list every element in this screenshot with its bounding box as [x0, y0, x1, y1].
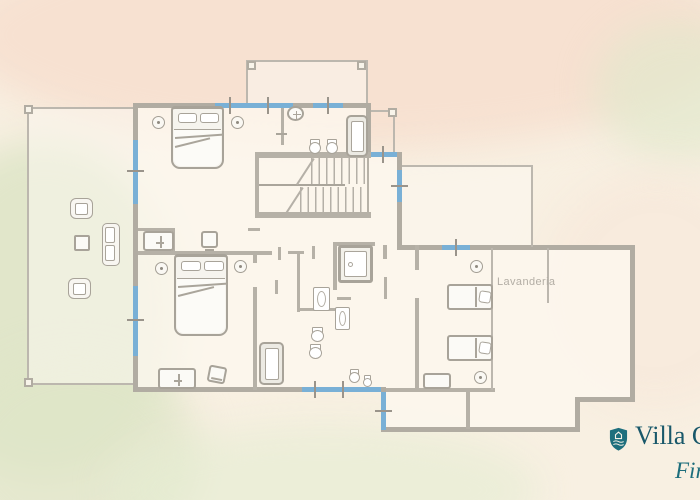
- tv-stand-base: [205, 249, 214, 251]
- armchair: [68, 278, 91, 299]
- terrace-post: [388, 108, 397, 117]
- wall: [337, 297, 351, 300]
- bed-divider: [475, 338, 477, 358]
- balcony-rail: [366, 60, 368, 103]
- window-tick: [382, 146, 384, 163]
- window-glass: [133, 140, 138, 204]
- nightstand-lamp: [234, 260, 247, 273]
- window-glass: [215, 103, 293, 108]
- window-tick: [267, 97, 269, 114]
- chair-mark: [156, 242, 164, 244]
- room-label-laundry: Lavanderia: [497, 276, 555, 288]
- nightstand-lamp: [231, 116, 244, 129]
- window-tick: [127, 170, 144, 172]
- terrace-post: [357, 61, 366, 70]
- wall: [253, 287, 257, 390]
- pillow: [204, 261, 224, 271]
- terrace-post: [247, 61, 256, 70]
- wall: [255, 212, 371, 218]
- nightstand-lamp: [155, 262, 168, 275]
- terrace-rail: [27, 107, 133, 109]
- double-bed: [171, 106, 224, 169]
- toilet: [349, 369, 360, 383]
- roof-terrace-floor: [402, 165, 533, 245]
- bathtub-basin: [351, 121, 364, 152]
- shower-drain: [348, 262, 353, 267]
- terrace-post: [24, 105, 33, 114]
- washbasin: [287, 106, 304, 121]
- pillow: [181, 261, 201, 271]
- staircase-treads: [311, 158, 368, 184]
- window-glass: [133, 286, 138, 356]
- toilet: [309, 139, 321, 154]
- single-bed: [447, 284, 493, 310]
- washbasin: [313, 287, 330, 311]
- lamp: [470, 260, 483, 273]
- balcony-floor: [246, 60, 368, 103]
- floor-plan-canvas: Lavanderia Villa G Fir: [0, 0, 700, 500]
- staircase-landing-line: [259, 184, 345, 186]
- balcony-rail: [246, 60, 368, 62]
- wall: [253, 251, 257, 263]
- wall: [466, 392, 470, 429]
- wall: [381, 427, 580, 432]
- shield-villa-icon: [608, 427, 629, 451]
- wall: [630, 245, 635, 402]
- bathtub: [346, 115, 368, 157]
- wall: [278, 247, 281, 260]
- roof-terrace-edge: [531, 165, 533, 247]
- partition-line: [491, 248, 493, 390]
- wall: [333, 242, 337, 290]
- wall: [312, 246, 315, 259]
- wall: [281, 108, 284, 145]
- brand-villa-name: Villa G: [635, 421, 700, 451]
- wall: [248, 228, 260, 231]
- bidet: [326, 139, 338, 154]
- desk-with-chair: [143, 231, 174, 251]
- side-table: [74, 235, 90, 251]
- chair-mark: [174, 380, 182, 382]
- bidet: [363, 375, 372, 387]
- faucet-cross: [293, 114, 301, 116]
- toilet: [309, 344, 322, 359]
- wall: [415, 245, 419, 270]
- bed-divider: [475, 287, 477, 307]
- double-bed: [174, 254, 228, 336]
- wall: [415, 298, 419, 390]
- terrace-rail: [27, 383, 133, 385]
- sofa-cushion: [105, 245, 115, 261]
- single-bed: [447, 335, 493, 361]
- terrace-post: [24, 378, 33, 387]
- bathtub-basin: [265, 348, 279, 380]
- window-tick: [375, 410, 392, 412]
- desk: [423, 373, 451, 389]
- wall: [275, 280, 278, 294]
- bathtub: [259, 342, 284, 385]
- wall: [288, 251, 304, 254]
- window-tick: [229, 97, 231, 114]
- window-tick: [327, 97, 329, 114]
- shower: [338, 245, 373, 283]
- tv-stand: [201, 231, 218, 248]
- terrace-rail: [27, 107, 29, 385]
- window-tick: [455, 239, 457, 256]
- brand-subtitle: Fir: [675, 458, 700, 484]
- pillow: [178, 113, 197, 123]
- sofa: [102, 223, 120, 266]
- staircase-treads: [300, 187, 367, 212]
- wall: [297, 254, 300, 312]
- window-tick: [391, 185, 408, 187]
- roof-terrace-edge: [402, 165, 533, 167]
- pillow: [478, 290, 492, 304]
- pillow: [200, 113, 219, 123]
- sofa-cushion: [105, 227, 115, 243]
- wall: [384, 277, 387, 299]
- towel-rail: [276, 133, 287, 135]
- desk-with-chair: [158, 368, 196, 389]
- side-chair: [207, 364, 228, 384]
- wall: [575, 397, 635, 402]
- pillow: [478, 341, 492, 355]
- nightstand-lamp: [152, 116, 165, 129]
- armchair: [70, 198, 93, 219]
- toilet: [311, 327, 324, 342]
- washbasin: [335, 307, 350, 330]
- wall: [397, 245, 635, 250]
- lamp: [474, 371, 487, 384]
- window-tick: [127, 319, 144, 321]
- window-tick: [342, 381, 344, 398]
- chair-seat-line: [211, 377, 222, 381]
- window-tick: [314, 381, 316, 398]
- window-glass: [371, 152, 397, 157]
- wall: [383, 245, 387, 259]
